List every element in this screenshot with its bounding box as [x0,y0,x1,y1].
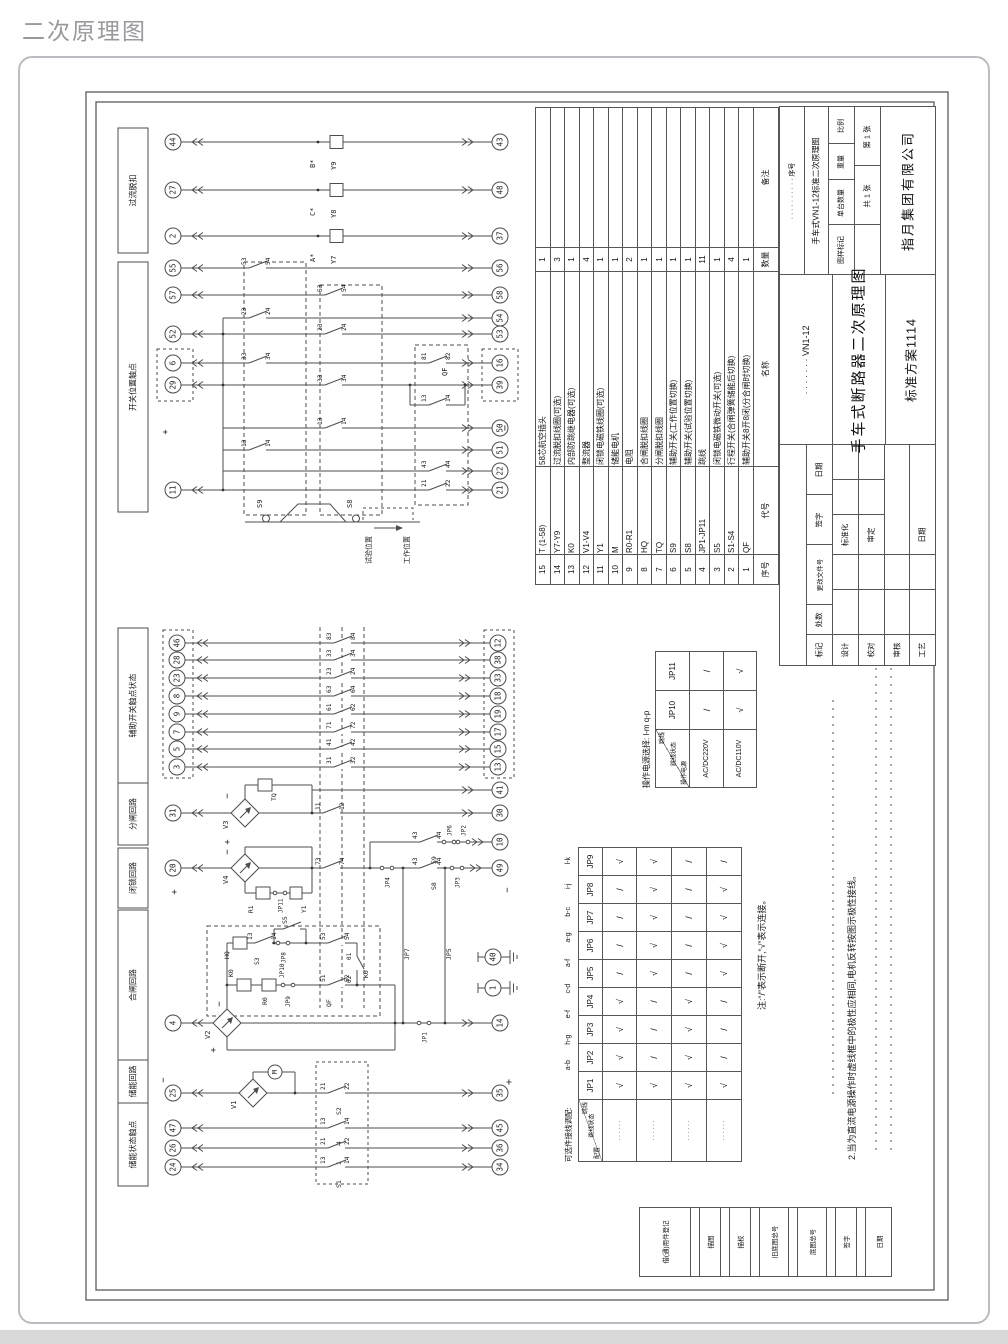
bom-cell [623,108,638,248]
title-block: 标记 处数 更改文件号 签字 日期 设计 校对 审核 工艺 标准化 审定 日期 … [779,106,936,666]
jumper-post [291,983,295,987]
bom-cell: 8 [637,555,652,585]
bom-cell: 1 [681,248,696,272]
jumper-corner-cell: 跳线跳线状态配置 [579,1100,603,1162]
component-box [237,979,251,991]
switch-label: QF [325,999,333,1007]
contact-num-bottom: 14 [344,1156,351,1164]
note-2: 2.当为直流电源操作时虚线框中的极性应相同,电机反转按图示极性接线。 [845,645,863,1160]
section-label: 辅助开关触点状态 [128,674,138,738]
contact-num-top: 83 [326,632,333,640]
contact-num-bottom: 44 [445,460,452,468]
cam-roller [353,515,360,522]
jumper-mark-cell: √ [672,1044,707,1072]
tb-company: 指月集团有限公司 [898,131,917,251]
terminal-number: 25 [169,1088,178,1097]
terminal-number: 47 [169,1123,178,1132]
margin-strip-cell: 签字 [835,1207,857,1277]
terminal-number: 19 [494,709,503,718]
bom-cell: 9 [623,555,638,585]
contact-num-top: 13 [317,417,324,425]
jumper-row-label: · · · · · · [602,1100,637,1162]
bom-cell: 1 [652,248,667,272]
bom-cell: 1 [565,248,580,272]
jumper-post [450,866,454,870]
bom-cell: 1 [739,248,754,272]
junction-dot [222,333,225,336]
contact-num-bottom: 34 [265,352,272,360]
jumper-col-header: JP4 [579,988,603,1016]
section-label: 储能回路 [128,1066,138,1098]
bom-cell: 3 [710,555,725,585]
section-label: 开关位置触点 [128,363,138,411]
jumper-col-header: JP8 [579,876,603,904]
terminal-number: 7 [173,730,182,735]
junction-dot [356,984,359,987]
bom-cell: 11 [695,248,710,272]
tb-line [806,445,807,665]
switch-label: S5 [281,916,289,924]
tb-seq-row: · · · · · · · · · · 序号 [787,163,797,220]
bom-cell: Y1 [594,467,609,555]
power-mark-cell: / [690,652,723,691]
contact-num-top: 33 [241,352,248,360]
terminal-number: 33 [494,673,503,682]
bom-cell: T (1-58) [536,467,551,555]
tb-field-qty: 单台数量 [836,189,846,217]
contact-num-bottom: 74 [339,857,346,865]
power-mark-cell: √ [723,652,756,691]
corner-state-label: 跳线状态 [669,742,678,766]
contact-num-bottom: 44 [436,831,443,839]
junction-dot [317,141,320,144]
polarity-sign: − [223,793,233,799]
contact-num-top: 13 [241,439,248,447]
jumper-label: JP6 [447,825,454,836]
jumper-label: JP11 [278,898,285,913]
bom-cell: 内部防跳继电器(可选) [565,272,580,467]
bom-cell: 4 [695,555,710,585]
terminal-number: 54 [496,313,505,323]
jumper-col-header: JP9 [579,848,603,876]
bom-header-cell: 备注 [753,108,778,248]
tb-line [909,445,910,665]
power-select-title: 操作电源选择: l-m q-p [637,652,655,788]
jumper-mark-cell: √ [602,848,637,876]
jumper-post [390,866,394,870]
terminal-number: 18 [494,691,503,701]
contact-num-top: 21 [421,479,428,487]
tb-field-weight: 重量 [836,155,846,169]
bom-cell: S5 [710,467,725,555]
test-position-label: 试验位置 [364,536,373,564]
bom-cell: 58芯航空插头 [536,272,551,467]
bom-cell: S1-S4 [724,467,739,555]
section-label: 分闸回路 [128,798,138,830]
terminal-number: 30 [496,808,505,818]
motor-label: M [271,1070,279,1074]
bom-table: 15T (1-58)58芯航空插头114Y7-Y9过流脱扣线圈(可选)313K0… [535,107,779,585]
jumper-post [442,840,446,844]
tb-sig-count: 处数 [814,613,825,628]
polarity-sign: + [209,1047,219,1053]
bom-cell [739,108,754,248]
margin-strip-cell: 旧底图总号 [759,1207,789,1277]
qf-label: QF [441,368,449,376]
tb-field-mark: 图样标记 [836,236,846,264]
bom-cell [666,108,681,248]
contact-blade [357,956,364,969]
bom-cell: 10 [608,555,623,585]
junction-dot [317,189,320,192]
jumper-mark-cell: / [602,960,637,988]
jumper-label: JP10 [279,963,286,978]
jumper-post [427,1021,431,1025]
jumper-label: JP2 [461,825,468,836]
jumper-mark-cell: / [672,932,707,960]
cam-s8-label: S8 [346,500,354,508]
bom-cell: 4 [579,248,594,272]
contact-num-top: 53 [317,284,324,292]
tb-line [854,165,880,166]
terminal-number: 35 [496,1088,505,1097]
jumper-mark-cell: / [707,1016,742,1044]
corner-state-label: 跳线状态 [586,1114,595,1138]
bom-cell: M [608,467,623,555]
contact-num-bottom: 24 [265,307,272,315]
jumper-mark-cell: √ [707,904,742,932]
contact-num-top: 73 [315,857,322,865]
tb-model: · · · · · · · VN1-12 [801,326,811,395]
contact-num-top: 21 [320,1082,327,1090]
jumper-code: c-d [565,976,572,1002]
jumper-mark-cell: √ [707,1072,742,1100]
rectifier-label: V1 [230,1101,238,1109]
contact-num-top: 13 [421,394,428,402]
component-box [233,937,247,949]
terminal-number: 27 [169,185,178,194]
contact-num-top: 71 [326,721,333,729]
bom-cell: 1 [594,248,609,272]
jumper-mark-cell: / [637,988,672,1016]
phase-label: A* [309,254,317,262]
jumper-label: JP3 [455,877,462,888]
bom-cell: 闭锁电磁铁线圈(可选) [594,272,609,467]
polarity-sign: − [159,1077,169,1083]
terminal-number: 12 [494,638,503,647]
tb-field-scale: 比例 [836,119,846,133]
jumper-row-label: · · · · · · [637,1100,672,1162]
tb-sig-change: 更改文件号 [814,559,824,592]
bom-cell [608,108,623,248]
terminal-number: 17 [494,727,503,736]
junction-dot [222,489,225,492]
power-table: 跳线跳线状态操作电源JP10JP11AC/DC220V//AC/DC110V√√ [655,651,757,788]
bom-cell [594,108,609,248]
contact-num-top: 33 [317,374,324,382]
jumper-mark-cell: √ [602,1016,637,1044]
bom-cell: 14 [550,555,565,585]
polarity-sign: + [223,839,233,845]
section-label: 过流脱扣 [128,175,138,207]
contact-num-top: 23 [317,323,324,331]
s9-dashed-box [244,262,306,515]
margin-strip-cell: 描校 [729,1207,751,1277]
tb-sig-check: 校对 [866,643,877,658]
tb-line [880,107,881,275]
bom-cell: S8 [681,467,696,555]
terminal-number: 4 [169,1020,178,1025]
jumper-config-table: 跳线跳线状态配置JP1JP2JP3JP4JP5JP6JP7JP8JP9· · ·… [578,848,742,1162]
terminal-number: 26 [169,1143,178,1153]
jumper-mark-cell: √ [637,904,672,932]
jumper-mark-cell: √ [602,1072,637,1100]
bom-cell [724,108,739,248]
contact-num-bottom: 82 [445,352,452,360]
contact-num-bottom: 84 [350,632,357,640]
terminal-number: 34 [496,1162,505,1172]
power-corner-cell: 跳线跳线状态操作电源 [656,730,690,788]
terminal-number: 22 [496,466,505,475]
contact-num-top: 41 [326,738,333,746]
bom-cell: 1 [666,248,681,272]
component-label: K0 [227,969,235,977]
switch-label: S2 [335,1107,343,1115]
tb-line [804,107,805,275]
bom-header-cell: 代号 [753,467,778,555]
bom-cell: 储能电机 [608,272,623,467]
terminal-number: 29 [169,380,178,389]
switch-label: S9 [430,856,438,864]
junction-dot [305,942,308,945]
contact-num-bottom: 14 [445,394,452,402]
trip-coil-label: Y9 [330,162,338,170]
jumper-post [452,840,456,844]
terminal-number: 38 [494,655,503,665]
jumper-mark-cell: / [707,1044,742,1072]
component-label: Y1 [301,905,308,913]
jumper-mark-cell: √ [637,1072,672,1100]
bom-cell [536,108,551,248]
jumper-label: JP8 [281,952,288,963]
tb-drawing-title: 手车式断路器二次原理图 [848,266,869,453]
power-row-label: AC/DC110V [723,730,756,788]
jumper-col-header: JP7 [579,904,603,932]
power-col-header: JP10 [656,691,690,730]
jumper-code: h-g [565,1027,572,1053]
tb-line [858,445,859,665]
bom-cell [681,108,696,248]
power-select-block: 操作电源选择: l-m q-p 跳线跳线状态操作电源JP10JP11AC/DC2… [637,652,757,788]
contact-num-top: 11 [315,802,322,810]
bom-cell: 分闸脱扣线圈 [652,272,667,467]
bom-cell: HQ [637,467,652,555]
trip-coil-label: Y7 [330,256,338,264]
power-col-header: JP11 [656,652,690,691]
jumper-mark-cell: √ [707,960,742,988]
terminal-number: 14 [496,1018,505,1028]
contact-num-bottom: 14 [265,439,272,447]
polarity-sign: − [223,849,233,855]
bom-cell: 1 [536,248,551,272]
bom-cell: 3 [550,248,565,272]
terminal-number: 9 [173,712,182,717]
jumper-row-label: · · · · · · [672,1100,707,1162]
tb-line [806,604,832,605]
terminal-number: 11 [169,485,178,494]
bom-cell: 1 [608,248,623,272]
contact-num-top: 31 [326,756,333,764]
terminal-number: 48 [496,185,505,195]
contact-num-bottom: 54 [341,284,348,292]
rectifier-label: V3 [222,821,230,829]
contact-num-bottom: 14 [344,1117,351,1125]
jumper-mark-cell: √ [602,988,637,1016]
polarity-sign: − [215,1001,225,1007]
contact-num-bottom: 72 [350,721,357,729]
trip-coil-box [330,136,343,149]
bom-cell: 1 [710,248,725,272]
junction-dot [317,235,320,238]
margin-strip-cell: 日期 [865,1207,892,1277]
tb-line [806,634,935,635]
component-box [290,887,302,899]
terminal-number: 56 [496,263,505,273]
jumper-mark-cell: √ [637,960,672,988]
component-label: R1 [248,905,255,913]
jumper-config-title: 可选件接线调配:a-bh-ge-fc-da-fa-gb-ci-jl-k [558,848,578,1162]
contact-num-bottom: 32 [350,756,357,764]
jumper-title-prefix: 可选件接线调配: [563,1078,574,1162]
tb-line [884,445,885,665]
jumper-mark-cell: / [707,848,742,876]
tb-line [806,494,832,495]
bom-cell: 12 [579,555,594,585]
jumper-mark-cell: √ [637,932,672,960]
jumper-mark-cell: √ [602,1044,637,1072]
terminal-number: 28 [173,655,182,665]
bom-cell: 2 [623,248,638,272]
bom-cell: K0 [565,467,580,555]
tb-sheets: 共 1 张 [862,184,873,207]
bom-cell: TQ [652,467,667,555]
tb-line [806,544,832,545]
contact-num-bottom: 62 [350,703,357,711]
jumper-mark-cell: / [602,904,637,932]
margin-strip-cell: 底图总号 [797,1207,827,1277]
jumper-label: JP9 [285,996,292,1007]
phase-label: B* [309,160,317,168]
tb-sig-audit: 审核 [892,643,903,658]
cam-profile [280,504,346,522]
corner-jumper-label: 跳线 [657,732,666,744]
polarity-sign: + [170,889,180,895]
bom-header-cell: 数量 [753,248,778,272]
jumper-mark-cell: √ [637,848,672,876]
jumper-post [281,983,285,987]
jumper-mark-cell: / [637,1016,672,1044]
margin-strip-cell: 描图 [699,1207,721,1277]
switch-label: S1 [335,1180,343,1188]
tb-line [828,107,829,275]
section-label: 合闸回路 [128,969,138,1001]
contact-num-bottom: 54 [265,257,272,265]
bom-cell: 辅助开关(试验位置切换) [681,272,696,467]
bom-cell: R0-R1 [623,467,638,555]
contact-num-top: 51 [320,974,327,982]
bom-cell [579,108,594,248]
jumper-mark-cell: / [672,848,707,876]
contact-num-bottom: 24 [341,323,348,331]
contact-num-top: 13 [247,932,254,940]
contact-num-top: 43 [412,857,419,865]
terminal-number: 58 [496,290,505,300]
bom-cell: S9 [666,467,681,555]
bom-cell: 2 [724,555,739,585]
jumper-col-header: JP5 [579,960,603,988]
bom-cell: 闭锁电磁铁微动开关(可选) [710,272,725,467]
junction-dot [444,1022,447,1025]
bom-cell: 6 [666,555,681,585]
terminal-number: 21 [496,485,505,494]
contact-num-bottom: 22 [445,479,452,487]
terminal-number: 53 [496,329,505,338]
junction-dot [311,812,314,815]
junction-dot [222,384,225,387]
contact-num-bottom: 34 [341,374,348,382]
contact-num-top: 33 [326,649,333,657]
contact-num-top: 13 [320,1117,327,1125]
terminal-number: 3 [173,765,182,770]
jumper-code: a-b [565,1052,572,1078]
trip-coil-label: Y8 [330,210,338,218]
jumper-col-header: JP6 [579,932,603,960]
terminal-number: 31 [169,808,178,817]
terminal-number: 16 [496,358,505,368]
note-1: 注:“/”表示断开,“√”表示连接。 [755,650,773,1010]
jumper-mark-cell: √ [707,876,742,904]
jumper-mark-cell: / [602,876,637,904]
terminal-number: 20 [169,863,178,873]
cam-roller [263,515,270,522]
junction-dot [402,1022,405,1025]
bom-cell: Y7-Y9 [550,467,565,555]
bom-header-cell: 序号 [753,555,778,585]
tb-line [854,107,855,275]
tb-sig-date: 日期 [814,463,825,478]
corner-source-label: 操作电源 [679,761,688,785]
terminal-number: 39 [496,380,505,389]
tb-sig-date2: 日期 [917,528,928,543]
jumper-mark-cell: √ [672,1016,707,1044]
terminal-number: 45 [496,1123,505,1132]
power-mark-cell: √ [723,691,756,730]
contact-num-top: 21 [320,1137,327,1145]
bom-cell [550,108,565,248]
jumper-mark-cell: √ [707,932,742,960]
jumper-mark-cell: / [637,1044,672,1072]
bom-cell: 过流脱扣线圈(可选) [550,272,565,467]
terminal-number: 43 [496,137,505,146]
jumper-mark-cell: / [602,932,637,960]
jumper-post [466,840,470,844]
bom-header-cell: 名称 [753,272,778,467]
terminal-number: 23 [173,673,182,682]
terminal-number: 5 [173,747,182,752]
bom-cell [695,108,710,248]
jumper-code: b-c [565,899,572,925]
bom-cell: 7 [652,555,667,585]
